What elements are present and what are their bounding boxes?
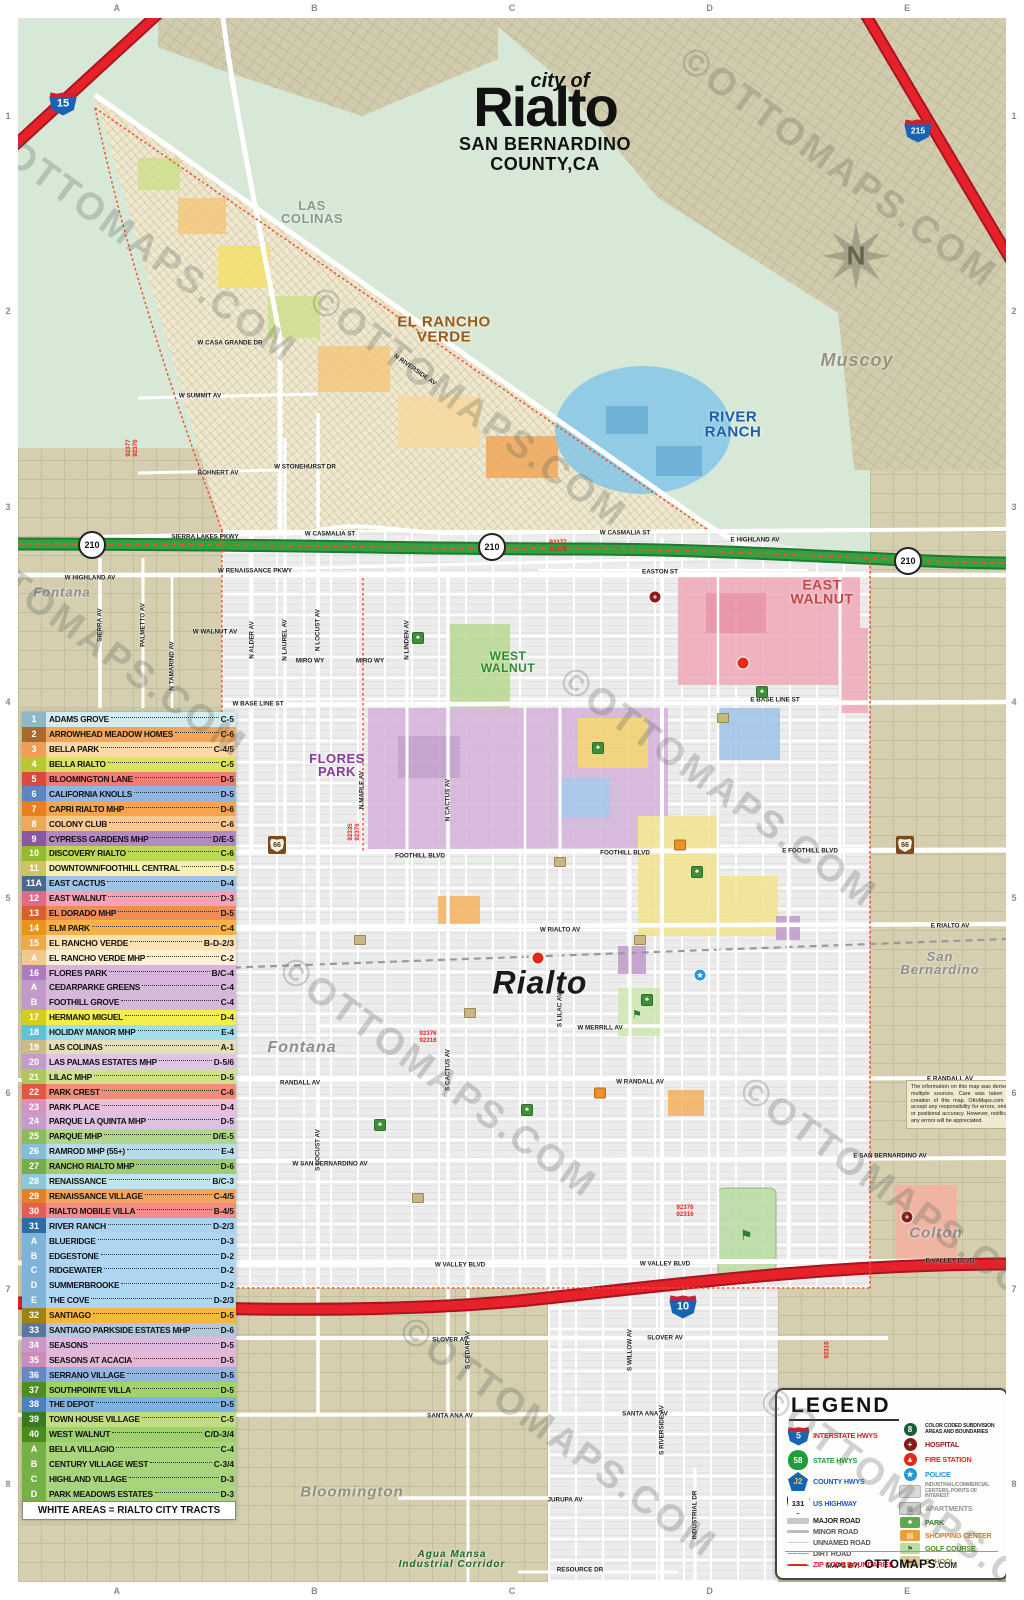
title-county-line1: SAN BERNARDINO xyxy=(459,135,631,155)
apartments-icon: ▦ xyxy=(895,1502,925,1515)
index-row-gridref: C-3/4 xyxy=(214,1459,234,1469)
legend-item-label: US HIGHWAY xyxy=(813,1499,857,1508)
index-leader-dots xyxy=(108,762,219,763)
grid-col-label-d: D xyxy=(706,3,713,13)
school-poi-icon xyxy=(354,935,366,945)
index-row-gridref: C-5 xyxy=(221,1414,234,1424)
subdivision-patches xyxy=(138,158,957,1276)
index-row-gridref: D-5 xyxy=(221,1310,234,1320)
street-label: W MERRILL AV xyxy=(577,1025,622,1032)
grid-col-label-b: B xyxy=(311,3,318,13)
legend-item-label: MINOR ROAD xyxy=(813,1527,858,1536)
index-row: 11AEAST CACTUSD-4 xyxy=(22,876,236,891)
legend-item-label: INTERSTATE HWYS xyxy=(813,1431,878,1440)
hospital-poi-icon: + xyxy=(901,1211,914,1224)
index-row: 11DOWNTOWN/FOOTHILL CENTRALD-5 xyxy=(22,861,236,876)
grid-row-label-4: 4 xyxy=(1011,697,1016,707)
police-icon: ★ xyxy=(895,1468,925,1481)
street-label: W VALLEY BLVD xyxy=(435,1262,485,1269)
legend-right-column: 8COLOR CODED SUBDIVISION AREAS AND BOUND… xyxy=(895,1423,1000,1571)
index-row: ETHE COVED-2/3 xyxy=(22,1293,236,1308)
school-poi-icon xyxy=(464,1008,476,1018)
index-row-number: 9 xyxy=(22,831,46,846)
street-label: S LOCUST AV xyxy=(315,1129,322,1171)
index-row-name: THE COVE xyxy=(49,1295,89,1305)
legend-item: J2COUNTY HWYS xyxy=(783,1472,895,1491)
index-row-number: 32 xyxy=(22,1308,46,1323)
index-row-number: B xyxy=(22,995,46,1010)
grid-row-label-2: 2 xyxy=(1011,306,1016,316)
index-row-number: 39 xyxy=(22,1412,46,1427)
street-label: S RIVERSIDE AV xyxy=(659,1405,666,1455)
interstate-15-shield: 15 xyxy=(50,91,77,116)
index-row-gridref: D-2 xyxy=(221,1251,234,1261)
index-row-name: SERRANO VILLAGE xyxy=(49,1370,125,1380)
grid-col-label-a: A xyxy=(114,3,121,13)
highway-210-shield: 210 xyxy=(894,547,922,575)
index-row-name: PARK MEADOWS ESTATES xyxy=(49,1489,153,1499)
index-row: 30RIALTO MOBILE VILLAB-4/5 xyxy=(22,1203,236,1218)
index-row: DSUMMERBROOKED-2 xyxy=(22,1278,236,1293)
area-label: Colton xyxy=(909,1225,962,1240)
index-row-number: 8 xyxy=(22,816,46,831)
grid-row-label-5: 5 xyxy=(1011,893,1016,903)
index-row: 25PARQUE MHPD/E-5 xyxy=(22,1129,236,1144)
grid-row-label-7: 7 xyxy=(5,1284,10,1294)
index-row-name: SOUTHPOINTE VILLA xyxy=(49,1385,131,1395)
index-row: 31RIVER RANCHD-2/3 xyxy=(22,1218,236,1233)
index-row-gridref: D-5 xyxy=(221,1072,234,1082)
index-row-gridref: C-5 xyxy=(221,714,234,724)
index-leader-dots xyxy=(129,1477,219,1478)
legend-item-label: MAJOR ROAD xyxy=(813,1516,860,1525)
index-row-gridref: C-4/5 xyxy=(214,744,234,754)
legend-item-label: FIRE STATION xyxy=(925,1455,971,1464)
index-row-number: 21 xyxy=(22,1069,46,1084)
index-row-number: A xyxy=(22,980,46,995)
legend-panel: LEGEND 5INTERSTATE HWYS58STATE HWYSJ2COU… xyxy=(775,1388,1006,1580)
legend-item: INDUSTRIAL/COMMERCIAL CENTERS, POINTS OF… xyxy=(895,1483,1000,1500)
grid-col-label-e: E xyxy=(904,3,910,13)
zipcode-label: 9237692316 xyxy=(419,1031,436,1045)
index-footer-note: WHITE AREAS = RIALTO CITY TRACTS xyxy=(22,1501,236,1520)
area-label: EASTWALNUT xyxy=(791,578,854,607)
index-row-number: 2 xyxy=(22,727,46,742)
index-row-gridref: D-3 xyxy=(221,1236,234,1246)
index-leader-dots xyxy=(118,911,219,912)
park-poi-icon: ♣ xyxy=(592,742,604,754)
street-label: W SUMMIT AV xyxy=(179,393,221,400)
index-leader-dots xyxy=(101,1254,219,1255)
index-row: 14ELM PARKC-4 xyxy=(22,920,236,935)
index-row-name: CENTURY VILLAGE WEST xyxy=(49,1459,148,1469)
park-poi-icon: ♣ xyxy=(641,994,653,1006)
index-row: 15EL RANCHO VERDEB-D-2/3 xyxy=(22,935,236,950)
index-leader-dots xyxy=(142,985,219,986)
index-leader-dots xyxy=(92,926,219,927)
map-canvas: ⚑ ⚑ N city of Rialto SAN BERNARDINO COUN… xyxy=(18,18,1006,1582)
index-row: 13EL DORADO MHPD-5 xyxy=(22,906,236,921)
hospital-poi-icon: + xyxy=(649,591,662,604)
legend-item: ▦APARTMENTS xyxy=(895,1502,1000,1515)
index-row-name: RIVER RANCH xyxy=(49,1221,106,1231)
index-row-gridref: B/C-3 xyxy=(212,1176,234,1186)
index-row-name: SEASONS AT ACACIA xyxy=(49,1355,132,1365)
index-row-gridref: D-5 xyxy=(221,1385,234,1395)
grid-row-label-4: 4 xyxy=(5,697,10,707)
index-row-number: 14 xyxy=(22,920,46,935)
street-label: W SAN BERNARDINO AV xyxy=(292,1161,367,1168)
zipcode-label: 9233592376 xyxy=(348,823,362,840)
index-row-number: 5 xyxy=(22,772,46,787)
index-leader-dots xyxy=(111,717,219,718)
index-row-gridref: C-4 xyxy=(221,982,234,992)
index-leader-dots xyxy=(134,792,219,793)
area-label: Fontana xyxy=(33,585,91,598)
street-label: N LOCUST AV xyxy=(315,609,322,651)
police-poi-icon: ★ xyxy=(694,969,707,982)
legend-item: ♣PARK xyxy=(895,1517,1000,1528)
street-label: W CASMALIA ST xyxy=(305,531,356,538)
street-label: INDUSTRIAL DR xyxy=(692,1491,699,1540)
index-row: 4BELLA RIALTOC-5 xyxy=(22,757,236,772)
area-label: Muscoy xyxy=(820,351,893,369)
index-row: 2ARROWHEAD MEADOW HOMESC-6 xyxy=(22,727,236,742)
index-row-gridref: D-5 xyxy=(221,1340,234,1350)
area-label: Fontana xyxy=(267,1040,336,1056)
index-row-gridref: E-4 xyxy=(221,1146,234,1156)
index-row-number: 23 xyxy=(22,1099,46,1114)
area-label: EL RANCHOVERDE xyxy=(397,315,490,346)
street-label: N LAUREL AV xyxy=(282,619,289,661)
index-row: CHIGHLAND VILLAGED-3 xyxy=(22,1471,236,1486)
index-row-name: PARQUE LA QUINTA MHP xyxy=(49,1116,146,1126)
index-row: 27RANCHO RIALTO MHPD-6 xyxy=(22,1159,236,1174)
legend-item: MINOR ROAD xyxy=(783,1527,895,1536)
legend-title: LEGEND xyxy=(789,1394,899,1421)
legend-item-label: POLICE xyxy=(925,1470,951,1479)
index-row-name: LILAC MHP xyxy=(49,1072,92,1082)
index-leader-dots xyxy=(108,896,218,897)
index-leader-dots xyxy=(147,956,219,957)
subdivision-index-rows: 1ADAMS GROVEC-52ARROWHEAD MEADOW HOMESC-… xyxy=(22,712,236,1501)
grid-row-label-1: 1 xyxy=(5,111,10,121)
index-row: BEDGESTONED-2 xyxy=(22,1248,236,1263)
index-row-gridref: C-4 xyxy=(221,923,234,933)
index-row-gridref: C-4 xyxy=(221,1444,234,1454)
line-major-icon xyxy=(783,1518,813,1524)
index-row: 33SANTIAGO PARKSIDE ESTATES MHPD-6 xyxy=(22,1323,236,1338)
index-row-name: RAMROD MHP (55+) xyxy=(49,1146,125,1156)
index-leader-dots xyxy=(125,1015,219,1016)
index-row-name: RANCHO RIALTO MHP xyxy=(49,1161,134,1171)
index-leader-dots xyxy=(145,1194,212,1195)
title-rialto: Rialto xyxy=(459,79,631,135)
index-row-number: 15 xyxy=(22,935,46,950)
index-row-number: 7 xyxy=(22,801,46,816)
legend-item: UNNAMED ROAD xyxy=(783,1538,895,1547)
index-row-number: 20 xyxy=(22,1054,46,1069)
index-row-name: HIGHLAND VILLAGE xyxy=(49,1474,127,1484)
index-leader-dots xyxy=(155,1492,219,1493)
index-row-number: 35 xyxy=(22,1352,46,1367)
street-label: W CASA GRANDE DR xyxy=(197,340,262,347)
index-row-name: SANTIAGO PARKSIDE ESTATES MHP xyxy=(49,1325,190,1335)
index-leader-dots xyxy=(109,822,219,823)
compass-north-letter: N xyxy=(847,241,866,272)
index-row: 17HERMANO MIGUELD-4 xyxy=(22,1010,236,1025)
street-label: W VALLEY BLVD xyxy=(640,1261,690,1268)
street-label: W HIGHLAND AV xyxy=(65,575,116,582)
index-row: 26RAMROD MHP (55+)E-4 xyxy=(22,1144,236,1159)
index-row-number: E xyxy=(22,1293,46,1308)
index-row-gridref: D-5 xyxy=(221,774,234,784)
index-row: ABELLA VILLAGIOC-4 xyxy=(22,1442,236,1457)
credit-brand: OTTOMAPS xyxy=(864,1557,936,1571)
index-row: 20LAS PALMAS ESTATES MHPD-5/6 xyxy=(22,1054,236,1069)
index-row-number: A xyxy=(22,950,46,965)
index-row-gridref: D-5 xyxy=(221,789,234,799)
us-icon: 131 xyxy=(783,1493,813,1514)
street-label: RANDALL AV xyxy=(280,1080,320,1087)
street-label: EASTON ST xyxy=(642,569,678,576)
grid-col-label-d: D xyxy=(706,1586,713,1596)
index-row-gridref: C/D-3/4 xyxy=(204,1429,234,1439)
index-row-name: THE DEPOT xyxy=(49,1399,94,1409)
index-row: 29RENAISSANCE VILLAGEC-4/5 xyxy=(22,1189,236,1204)
index-row-number: 25 xyxy=(22,1129,46,1144)
index-row: 12EAST WALNUTD-3 xyxy=(22,891,236,906)
index-row-number: 33 xyxy=(22,1323,46,1338)
index-row-number: 30 xyxy=(22,1203,46,1218)
legend-item: ▤SHOPPING CENTER xyxy=(895,1530,1000,1541)
legend-item-label: APARTMENTS xyxy=(925,1504,972,1513)
street-label: SIERRA AV xyxy=(97,608,104,641)
index-row-name: PARK CREST xyxy=(49,1087,100,1097)
index-leader-dots xyxy=(102,1090,219,1091)
index-row-gridref: C-5 xyxy=(221,759,234,769)
street-label: FOOTHILL BLVD xyxy=(600,850,650,857)
grid-row-label-1: 1 xyxy=(1011,111,1016,121)
index-row-gridref: C-2 xyxy=(221,953,234,963)
area-label: Bloomington xyxy=(300,1484,403,1499)
index-row-name: SEASONS xyxy=(49,1340,88,1350)
school-poi-icon xyxy=(634,935,646,945)
index-row-gridref: B/C-4 xyxy=(212,968,234,978)
index-row: 28RENAISSANCEB/C-3 xyxy=(22,1174,236,1189)
area-label: SanBernardino xyxy=(900,950,979,977)
shopping-poi-icon xyxy=(594,1088,606,1099)
index-row-name: WEST WALNUT xyxy=(49,1429,110,1439)
street-label: E VALLEY BLVD xyxy=(926,1258,975,1265)
grid-col-label-c: C xyxy=(509,1586,516,1596)
grid-row-label-8: 8 xyxy=(1011,1479,1016,1489)
fire-poi-icon xyxy=(737,657,750,670)
legend-credit: MAPS BY: OTTOMAPS.COM xyxy=(785,1551,998,1573)
grid-row-label-2: 2 xyxy=(5,306,10,316)
fire-poi-icon xyxy=(532,952,545,965)
index-row-gridref: C-6 xyxy=(221,1087,234,1097)
index-row-name: RIALTO MOBILE VILLA xyxy=(49,1206,135,1216)
index-row-name: RIDGEWATER xyxy=(49,1265,102,1275)
index-row-number: 13 xyxy=(22,906,46,921)
index-row-number: 40 xyxy=(22,1427,46,1442)
index-leader-dots xyxy=(192,1328,218,1329)
index-row: 37SOUTHPOINTE VILLAD-5 xyxy=(22,1382,236,1397)
legend-item: ▲FIRE STATION xyxy=(895,1453,1000,1466)
map-poster: ⚑ ⚑ N city of Rialto SAN BERNARDINO COUN… xyxy=(0,0,1024,1600)
index-row-gridref: D-5 xyxy=(221,1116,234,1126)
legend-left-column: 5INTERSTATE HWYS58STATE HWYSJ2COUNTY HWY… xyxy=(783,1423,895,1571)
index-row-number: D xyxy=(22,1278,46,1293)
index-row: 1ADAMS GROVEC-5 xyxy=(22,712,236,727)
school-poi-icon xyxy=(412,1193,424,1203)
index-leader-dots xyxy=(93,1313,219,1314)
index-row-name: SUMMERBROOKE xyxy=(49,1280,119,1290)
area-label: Agua MansaIndustrial Corridor xyxy=(399,1550,506,1570)
index-leader-dots xyxy=(98,1239,219,1240)
index-row-gridref: A-1 xyxy=(221,1042,234,1052)
index-row-number: 37 xyxy=(22,1382,46,1397)
street-label: FOOTHILL BLVD xyxy=(395,853,445,860)
area-label: Rialto xyxy=(493,967,588,1000)
street-label: W RIALTO AV xyxy=(540,927,580,934)
index-row-number: C xyxy=(22,1263,46,1278)
index-row-name: HOLIDAY MANOR MHP xyxy=(49,1027,136,1037)
index-row-gridref: D-4 xyxy=(221,1012,234,1022)
interstate-10-shield: 10 xyxy=(670,1294,697,1319)
zipcode-label: 92316 xyxy=(825,1341,832,1358)
index-row-gridref: D-2/3 xyxy=(213,1221,234,1231)
index-row-gridref: D-5 xyxy=(221,1399,234,1409)
legend-item-label: COLOR CODED SUBDIVISION AREAS AND BOUNDA… xyxy=(925,1424,1000,1435)
index-row: 36SERRANO VILLAGED-5 xyxy=(22,1367,236,1382)
index-row-name: EAST WALNUT xyxy=(49,893,106,903)
index-row: 22PARK CRESTC-6 xyxy=(22,1084,236,1099)
street-label: N LINDEN AV xyxy=(404,620,411,660)
street-label: N TAMARIND AV xyxy=(169,641,176,690)
title-county-line2: COUNTY,CA xyxy=(459,155,631,175)
index-row: 35SEASONS AT ACACIAD-5 xyxy=(22,1352,236,1367)
legend-item-label: PARK xyxy=(925,1518,944,1527)
index-leader-dots xyxy=(175,732,219,733)
index-row-number: 31 xyxy=(22,1218,46,1233)
index-row-gridref: D-2 xyxy=(221,1265,234,1275)
index-row-name: ELM PARK xyxy=(49,923,90,933)
index-row-name: BELLA RIALTO xyxy=(49,759,106,769)
index-row-name: DISCOVERY RIALTO xyxy=(49,848,126,858)
grid-col-label-b: B xyxy=(311,1586,318,1596)
index-row-gridref: B-4/5 xyxy=(214,1206,234,1216)
index-row-gridref: D-5 xyxy=(221,908,234,918)
street-label: E RIALTO AV xyxy=(931,923,970,930)
index-leader-dots xyxy=(109,971,209,972)
grid-row-label-5: 5 xyxy=(5,893,10,903)
line-minor-icon xyxy=(783,1530,813,1533)
index-row: 10DISCOVERY RIALTOC-6 xyxy=(22,846,236,861)
street-label: SANTA ANA AV xyxy=(427,1413,473,1420)
golf-flag-icon: ⚑ xyxy=(632,1009,642,1021)
index-row-number: 19 xyxy=(22,1040,46,1055)
legend-item: 5INTERSTATE HWYS xyxy=(783,1423,895,1448)
index-row: 24PARQUE LA QUINTA MHPD-5 xyxy=(22,1114,236,1129)
fire-icon: ▲ xyxy=(895,1453,925,1466)
grid-row-label-3: 3 xyxy=(5,502,10,512)
legend-item: ★POLICE xyxy=(895,1468,1000,1481)
index-leader-dots xyxy=(128,851,219,852)
index-leader-dots xyxy=(109,1179,211,1180)
index-row-gridref: D-3 xyxy=(221,1489,234,1499)
index-leader-dots xyxy=(105,1045,219,1046)
street-label: N ALDER AV xyxy=(249,621,256,659)
index-row-gridref: C-6 xyxy=(221,819,234,829)
index-row-name: ADAMS GROVE xyxy=(49,714,109,724)
index-row-number: 6 xyxy=(22,786,46,801)
index-row-name: PARK PLACE xyxy=(49,1102,100,1112)
index-leader-dots xyxy=(96,1402,218,1403)
index-row-name: CALIFORNIA KNOLLS xyxy=(49,789,132,799)
park-poi-icon: ♣ xyxy=(374,1119,386,1131)
index-row: 40WEST WALNUTC/D-3/4 xyxy=(22,1427,236,1442)
index-row-gridref: D-5 xyxy=(221,863,234,873)
index-row: 21LILAC MHPD-5 xyxy=(22,1069,236,1084)
route-66-shield: 66 xyxy=(896,836,914,854)
street-label: MIRO WY xyxy=(356,658,384,665)
index-leader-dots xyxy=(126,807,219,808)
index-row-gridref: D-5 xyxy=(221,1370,234,1380)
index-leader-dots xyxy=(136,1164,218,1165)
grid-col-label-c: C xyxy=(509,3,516,13)
index-row-number: B xyxy=(22,1457,46,1472)
index-row-number: D xyxy=(22,1486,46,1501)
school-poi-icon xyxy=(554,857,566,867)
index-row-number: 28 xyxy=(22,1174,46,1189)
legend-item: 8COLOR CODED SUBDIVISION AREAS AND BOUND… xyxy=(895,1423,1000,1436)
index-leader-dots xyxy=(108,1224,211,1225)
index-row-gridref: D/E-5 xyxy=(213,834,234,844)
index-row-gridref: D-5/6 xyxy=(214,1057,234,1067)
street-label: W STONEHURST DR xyxy=(274,464,336,471)
index-row-number: C xyxy=(22,1471,46,1486)
street-label: MIRO WY xyxy=(296,658,324,665)
interstate-icon: 5 xyxy=(783,1423,813,1448)
index-leader-dots xyxy=(102,1105,219,1106)
index-leader-dots xyxy=(121,1283,218,1284)
state-icon: 58 xyxy=(783,1450,813,1470)
grid-row-label-7: 7 xyxy=(1011,1284,1016,1294)
park-poi-icon: ♣ xyxy=(691,866,703,878)
index-row-gridref: D-6 xyxy=(221,804,234,814)
railroad-line xyxy=(222,939,1006,968)
legend-item: MAJOR ROAD xyxy=(783,1516,895,1525)
industrial-icon xyxy=(895,1485,925,1498)
area-label: FLORESPARK xyxy=(309,752,365,779)
index-row-number: 3 xyxy=(22,742,46,757)
index-row: 8COLONY CLUBC-6 xyxy=(22,816,236,831)
index-row-gridref: D-6 xyxy=(221,1161,234,1171)
index-leader-dots xyxy=(112,1432,202,1433)
index-row-name: HERMANO MIGUEL xyxy=(49,1012,123,1022)
legend-item-label: COUNTY HWYS xyxy=(813,1477,865,1486)
index-row: BCENTURY VILLAGE WESTC-3/4 xyxy=(22,1457,236,1472)
street-label: BOHNERT AV xyxy=(198,470,239,477)
index-row-number: 1 xyxy=(22,712,46,727)
street-label: W CASMALIA ST xyxy=(600,530,651,537)
index-row-number: A xyxy=(22,1442,46,1457)
index-row-gridref: E-4 xyxy=(221,1027,234,1037)
street-label: JURUPA AV xyxy=(548,1497,583,1504)
index-row-number: 16 xyxy=(22,965,46,980)
